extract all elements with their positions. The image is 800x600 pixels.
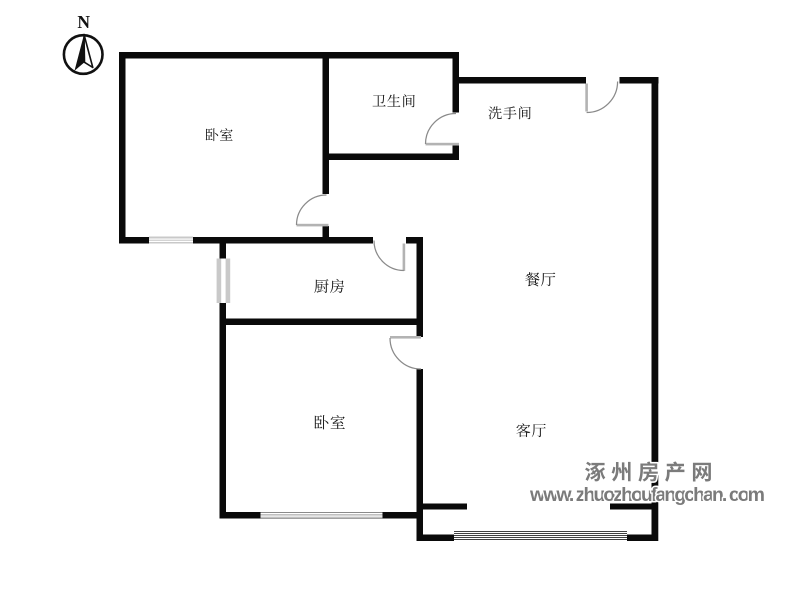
svg-text:N: N [77, 12, 90, 32]
svg-text:www. zhuozhoufangchan. com: www. zhuozhoufangchan. com [529, 484, 765, 506]
